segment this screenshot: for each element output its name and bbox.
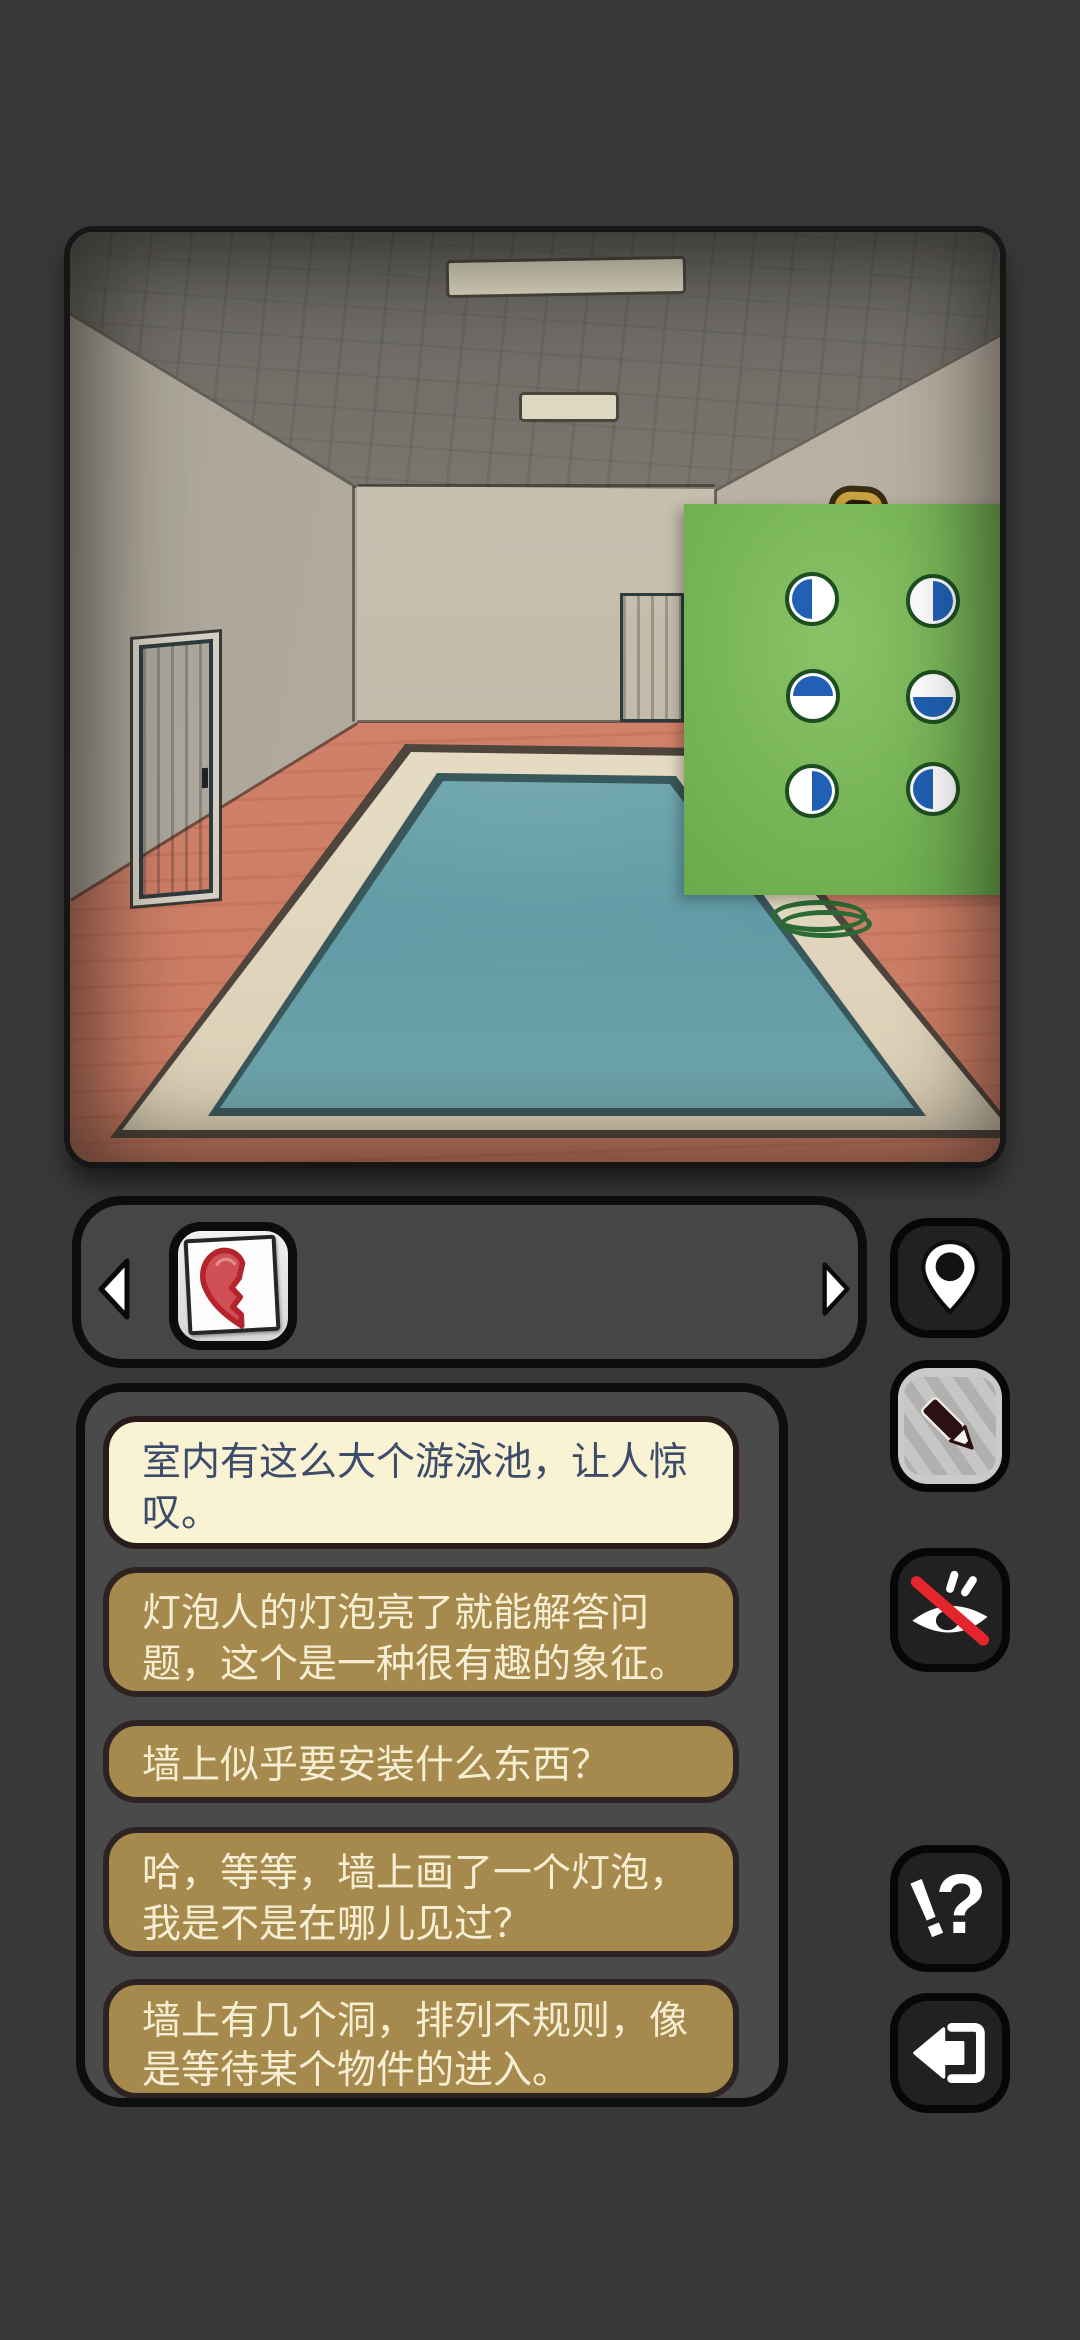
inventory-slot-broken-heart[interactable] [169,1222,297,1350]
dialogue-bubble: 墙上似乎要安装什么东西？ [103,1720,739,1803]
hide-interface-button[interactable] [890,1548,1010,1672]
eye-off-icon [906,1566,994,1654]
broken-heart-icon [190,1241,278,1333]
dialogue-bubble: 室内有这么大个游泳池，让人惊 叹。 [103,1416,739,1549]
dialogue-bubble: 哈，等等，墙上画了一个灯泡， 我是不是在哪儿见过？ [103,1827,739,1957]
inventory-right-arrow-icon[interactable] [821,1261,851,1317]
inventory-bar [72,1196,867,1368]
hint-question-icon: ? [935,1856,986,1953]
item-card [184,1235,281,1336]
notes-button-pad [904,1377,996,1475]
game-screen: ! ? 室内有这么大个游泳池，让人惊 叹。 灯泡人的灯泡亮了就能解答问 题，这个… [0,0,1080,2340]
dialogue-bubble: 灯泡人的灯泡亮了就能解答问 题，这个是一种很有趣的象征。 [103,1567,739,1697]
inventory-left-arrow-icon[interactable] [97,1257,131,1321]
pencil-icon [911,1384,989,1468]
dialogue-bubble: 墙上有几个洞，排列不规则，像 是等待某个物件的进入。 [103,1979,739,2099]
dialogue-log-panel: 室内有这么大个游泳池，让人惊 叹。 灯泡人的灯泡亮了就能解答问 题，这个是一种很… [76,1383,788,2107]
back-arrow-icon [910,2016,990,2090]
hint-button[interactable]: ! ? [890,1845,1010,1972]
map-button[interactable] [890,1218,1010,1338]
location-pin-icon [917,1238,983,1318]
scene-view[interactable] [64,226,1006,1168]
scene-vignette [70,232,1006,1168]
back-button[interactable] [890,1993,1010,2113]
notes-button[interactable] [890,1360,1010,1492]
